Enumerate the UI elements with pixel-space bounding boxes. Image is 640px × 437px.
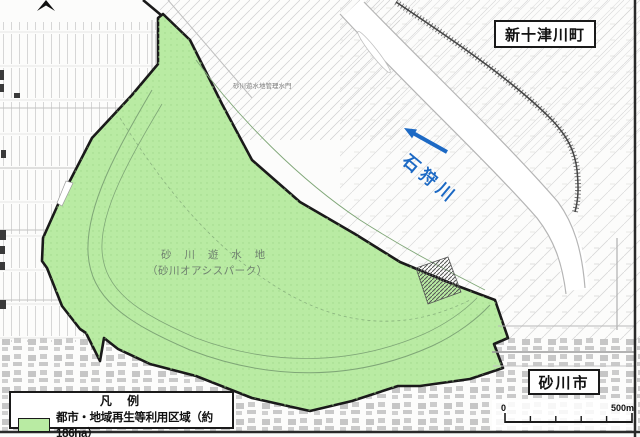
facility-small-label: 砂川遊水地管理水門 <box>233 80 292 90</box>
legend-zone-label: 都市・地域再生等利用区域（約186ha） <box>56 409 227 437</box>
site-name-line1: 砂 川 遊 水 地 <box>161 247 270 262</box>
site-name-line2: （砂川オアシスパーク） <box>147 263 268 278</box>
scale-start-label: 0 <box>501 403 506 413</box>
town-label-text: 新十津川町 <box>505 24 585 45</box>
town-label-shintotsukawa: 新十津川町 <box>494 20 596 48</box>
scale-end-label: 500m <box>600 403 634 413</box>
legend-row: 都市・地域再生等利用区域（約186ha） <box>18 409 227 437</box>
city-label-text: 砂川市 <box>538 372 589 393</box>
legend-title: 凡 例 <box>18 394 227 408</box>
legend: 凡 例 都市・地域再生等利用区域（約186ha） <box>9 391 234 429</box>
city-label-sunagawa: 砂川市 <box>528 369 600 395</box>
legend-zone-swatch <box>18 418 50 432</box>
map-canvas: 新十津川町 砂川市 石狩川 砂 川 遊 水 地 （砂川オアシスパーク） 砂川遊水… <box>0 0 640 437</box>
north-arrow-icon <box>37 0 55 11</box>
